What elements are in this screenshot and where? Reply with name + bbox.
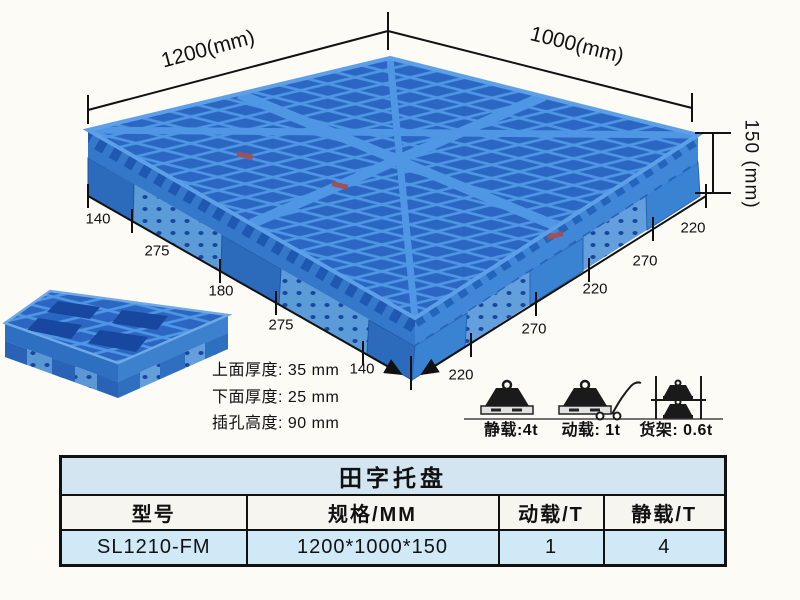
dim-label-right-2: 270	[521, 322, 546, 337]
table-row: SL1210-FM 1200*1000*150 1 4	[61, 530, 726, 566]
thickness-note-fork: 插孔高度: 90 mm	[212, 409, 339, 433]
cell-model: SL1210-FM	[61, 530, 247, 566]
dim-label-height: 150 (mm)	[742, 119, 761, 208]
dim-label-left-5: 140	[349, 362, 374, 377]
rack-load-icon	[651, 376, 706, 419]
column-header-static-load: 静载/T	[604, 495, 726, 530]
dim-label-right-3: 220	[582, 282, 607, 297]
static-load-icon	[481, 381, 533, 414]
column-header-spec: 规格/MM	[247, 495, 499, 530]
pallet-spec-sheet: 1200(mm) 1000(mm) 150 (mm) 140 275 180 2…	[0, 0, 800, 600]
thickness-note-bottom: 下面厚度: 25 mm	[212, 383, 339, 407]
cell-spec: 1200*1000*150	[247, 530, 499, 566]
dim-label-right-1: 220	[448, 368, 473, 383]
cell-static-load: 4	[604, 530, 726, 566]
column-header-model: 型号	[61, 495, 247, 530]
rack-load-label: 货架: 0.6t	[639, 423, 712, 439]
dim-label-right-5: 220	[680, 221, 705, 236]
thickness-note-top: 上面厚度: 35 mm	[212, 356, 339, 380]
cell-dynamic-load: 1	[499, 530, 604, 566]
dim-label-right-4: 270	[632, 254, 657, 269]
load-icons	[464, 376, 723, 420]
dim-label-left-3: 180	[208, 284, 233, 299]
dim-label-left-2: 275	[144, 244, 169, 259]
table-title: 田字托盘	[61, 457, 726, 496]
dynamic-load-icon	[559, 381, 641, 420]
spec-table: 田字托盘 型号 规格/MM 动载/T 静载/T SL1210-FM 1200*1…	[59, 455, 727, 567]
dim-label-left-1: 140	[85, 212, 110, 227]
dim-label-left-4: 275	[268, 318, 293, 333]
small-pallet	[5, 291, 228, 398]
static-load-label: 静载:4t	[484, 423, 538, 439]
column-header-dynamic-load: 动载/T	[499, 495, 604, 530]
dynamic-load-label: 动载: 1t	[561, 423, 620, 439]
